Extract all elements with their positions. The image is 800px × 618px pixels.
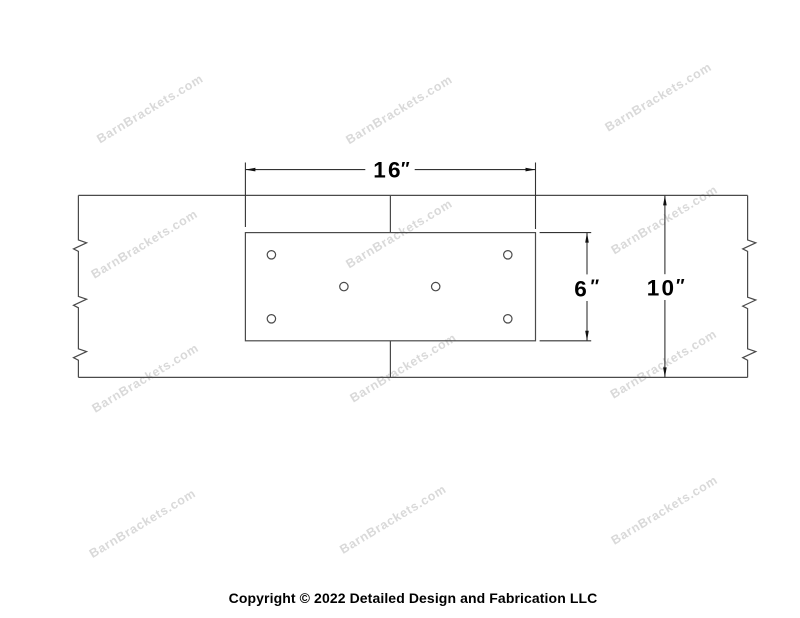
svg-text:″: ″ (401, 159, 410, 179)
svg-text:Copyright © 2022 Detailed Desi: Copyright © 2022 Detailed Design and Fab… (229, 590, 598, 606)
svg-text:10: 10 (647, 275, 676, 300)
svg-text:″: ″ (676, 276, 685, 296)
svg-text:″: ″ (591, 276, 600, 296)
svg-text:6: 6 (574, 277, 589, 302)
svg-text:16: 16 (373, 158, 402, 183)
